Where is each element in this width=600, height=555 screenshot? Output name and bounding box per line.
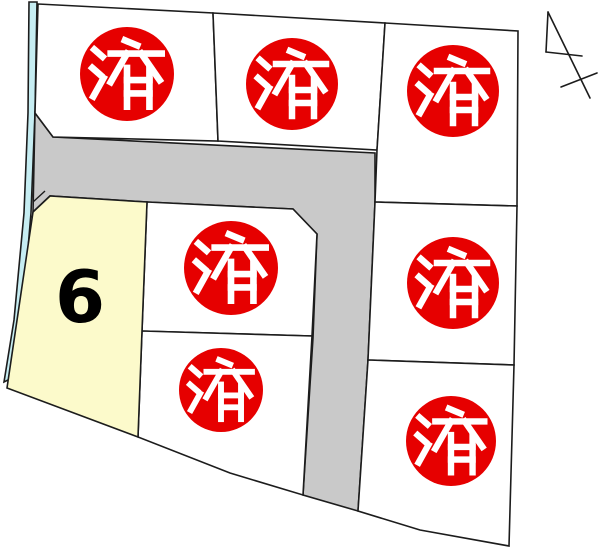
sold-badge: 済 [407, 237, 499, 329]
north-arrow-icon [546, 12, 597, 98]
sold-badge: 済 [246, 38, 338, 130]
sold-badge: 済 [406, 396, 496, 486]
sold-badge: 済 [407, 45, 499, 137]
sold-badge: 済 [179, 348, 263, 432]
sold-badge: 済 [184, 221, 278, 315]
lot-number-label: 6 [55, 255, 105, 339]
lot-map-page: 6 済 済 済 済 済 済 済 [0, 0, 600, 555]
lot-map: 6 済 済 済 済 済 済 済 [0, 0, 600, 555]
sold-badge: 済 [80, 27, 174, 121]
